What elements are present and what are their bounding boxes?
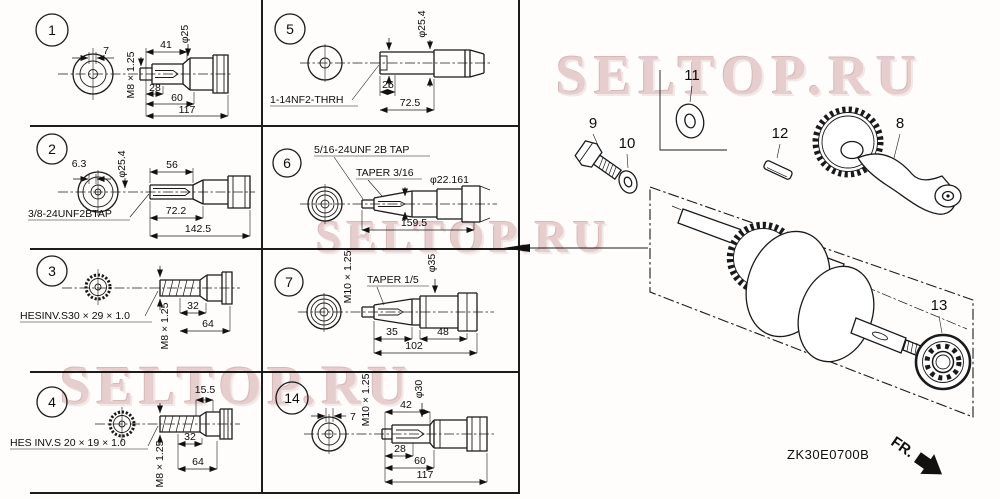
dim-7: 7 [350,411,356,423]
cell-6-badge: 6 [273,149,301,177]
cell-4-drawing: 4 15.5 HES INV.S 20 × 19 × 1.0 M8 × 1.25 [0,372,262,499]
crankshaft-assembly-view: 9 10 11 12 [480,0,1000,499]
cell-2-badge: 2 [37,134,67,164]
cell-3-badge: 3 [37,256,67,286]
cell-7-badge: 7 [275,268,303,296]
cell-3-number: 3 [48,263,56,279]
cell-1-drawing: 1 7 M8 × 1.25 41 φ25 28 60 [0,0,262,125]
cell-4-badge: 4 [37,387,67,417]
dim-1425: 142.5 [185,223,211,235]
bearing-part-13 [916,335,970,389]
dim-28: 28 [394,443,406,455]
dim-dia30: φ30 [413,380,425,399]
dim-56: 56 [166,159,178,171]
part-12-label: 12 [772,125,789,142]
washer-part-11 [673,101,707,141]
dim-dia25: φ25 [179,25,191,44]
part-11-label: 11 [684,67,700,84]
note-taper: TAPER 1/5 [367,274,419,286]
cell-1-number: 1 [48,22,56,38]
part-9-label: 9 [589,115,597,132]
cell-5-shaft [380,50,484,77]
note-thread: 1-14NF2-THRH [270,94,344,106]
dim-thread: M8 × 1.25 [125,51,137,98]
dim-60: 60 [171,92,183,104]
note-spline: HESINV.S30 × 29 × 1.0 [20,310,130,322]
dim-dia35: φ35 [426,254,438,273]
fr-label: FR. [888,433,918,461]
dim-thread: M8 × 1.25 [159,302,171,349]
dim-thread: M10 × 1.25 [342,250,354,303]
dim-42: 42 [400,399,412,411]
cell-4-number: 4 [48,394,56,410]
dim-102: 102 [405,340,423,352]
cell-1-badge: 1 [36,14,68,46]
cell-3-end-view [86,269,110,305]
fr-direction: FR. [886,430,949,484]
cell-7-end-view [307,293,341,332]
dim-35: 35 [386,326,398,338]
dim-117: 117 [179,104,196,116]
dim-155: 15.5 [195,384,216,396]
parts-diagram-page: 1 7 M8 × 1.25 41 φ25 28 60 [0,0,1000,499]
diagram-code: ZK30E0700B [787,447,869,462]
note-tap: 3/8-24UNF2BTAP [28,208,112,220]
dim-7: 7 [103,45,109,57]
dim-64: 64 [202,318,214,330]
dim-dia254: φ25.4 [416,10,428,37]
cell-6-number: 6 [283,155,291,171]
dim-dia22161: φ22.161 [430,174,469,186]
dim-32: 32 [187,300,199,312]
cell-2-number: 2 [48,141,56,157]
note-spline: HES INV.S 20 × 19 × 1.0 [10,437,126,449]
note-taper: TAPER 3/16 [356,167,414,179]
dim-28: 28 [149,82,161,94]
cell-14-badge: 14 [276,382,308,414]
detail-reference-arrow [503,244,648,252]
dim-41: 41 [160,39,172,51]
cell-3-drawing: 3 M8 × 1.25 32 64 HESINV.S30 × 29 × 1.0 [0,249,262,372]
dim-1595: 159.5 [401,217,427,229]
part-10-label: 10 [619,135,636,152]
cell-7-number: 7 [285,274,293,290]
dim-63: 6.3 [72,158,87,170]
dim-64: 64 [192,456,204,468]
dim-thread: M8 × 1.25 [154,440,166,487]
bolt-part-9 [573,138,626,186]
dim-32: 32 [184,431,196,443]
cell-14-number: 14 [284,390,300,406]
dim-48: 48 [437,326,449,338]
cell-2-drawing: 2 6.3 φ25.4 56 72.2 142.5 3/8-24U [0,126,262,249]
dim-60: 60 [414,455,426,467]
dim-725: 72.5 [400,97,421,109]
part-8-label: 8 [896,115,904,132]
dim-thread: M10 × 1.25 [360,373,372,426]
dim-dia254: φ25.4 [116,150,128,177]
part-13-label: 13 [931,297,948,314]
cell-5-badge: 5 [275,14,305,44]
cell-5-number: 5 [286,21,294,37]
dim-117: 117 [417,469,434,481]
key-part-12 [763,160,793,180]
note-tap: 5/16-24UNF 2B TAP [314,144,409,156]
balancer-part-8 [813,107,961,214]
dim-722: 72.2 [166,205,187,217]
dim-26: 26 [382,79,394,91]
fr-arrow-icon [911,447,949,484]
